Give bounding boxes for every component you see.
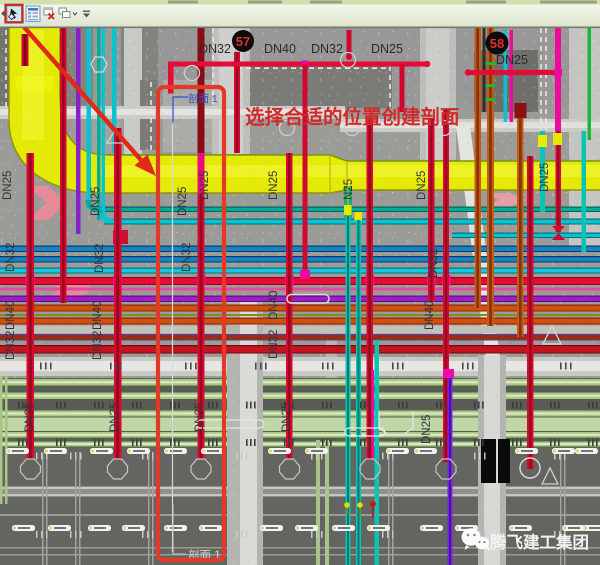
svg-text:选择合适的位置创建剖面: 选择合适的位置创建剖面 — [245, 106, 460, 129]
svg-text:腾飞建工集团: 腾飞建工集团 — [490, 532, 589, 552]
svg-text:DN25: DN25 — [90, 187, 102, 216]
svg-text:DN25: DN25 — [421, 415, 433, 444]
svg-text:DN25: DN25 — [199, 171, 211, 200]
svg-text:DN25: DN25 — [539, 163, 551, 192]
svg-text:DN25: DN25 — [194, 403, 206, 432]
svg-text:N25: N25 — [343, 179, 355, 200]
svg-text:DN25: DN25 — [268, 171, 280, 200]
svg-text:DN40: DN40 — [424, 301, 436, 330]
svg-text:剖面 1: 剖面 1 — [188, 92, 218, 105]
svg-text:DN25: DN25 — [371, 42, 403, 56]
svg-text:DN25: DN25 — [24, 403, 36, 432]
svg-text:DN40: DN40 — [268, 291, 280, 320]
svg-text:57: 57 — [236, 34, 250, 49]
svg-text:DN40: DN40 — [264, 42, 296, 56]
svg-text:DN32: DN32 — [428, 249, 440, 278]
svg-text:DN25: DN25 — [2, 171, 14, 200]
svg-text:DN25: DN25 — [177, 187, 189, 216]
svg-text:DN32: DN32 — [5, 331, 17, 360]
svg-text:DN25: DN25 — [109, 403, 121, 432]
svg-text:DN25: DN25 — [416, 171, 428, 200]
svg-text:DN32: DN32 — [199, 42, 231, 56]
svg-text:DN32: DN32 — [92, 331, 104, 360]
svg-text:DN40: DN40 — [5, 301, 17, 330]
svg-text:DN25: DN25 — [281, 403, 293, 432]
svg-text:DN25: DN25 — [496, 53, 528, 67]
svg-text:DN32: DN32 — [268, 330, 280, 359]
svg-text:DN40: DN40 — [92, 301, 104, 330]
svg-text:DN32: DN32 — [94, 244, 106, 273]
svg-text:DN32: DN32 — [5, 243, 17, 272]
svg-text:DN32: DN32 — [311, 42, 343, 56]
svg-text:58: 58 — [490, 36, 504, 51]
svg-text:DN32: DN32 — [181, 243, 193, 272]
